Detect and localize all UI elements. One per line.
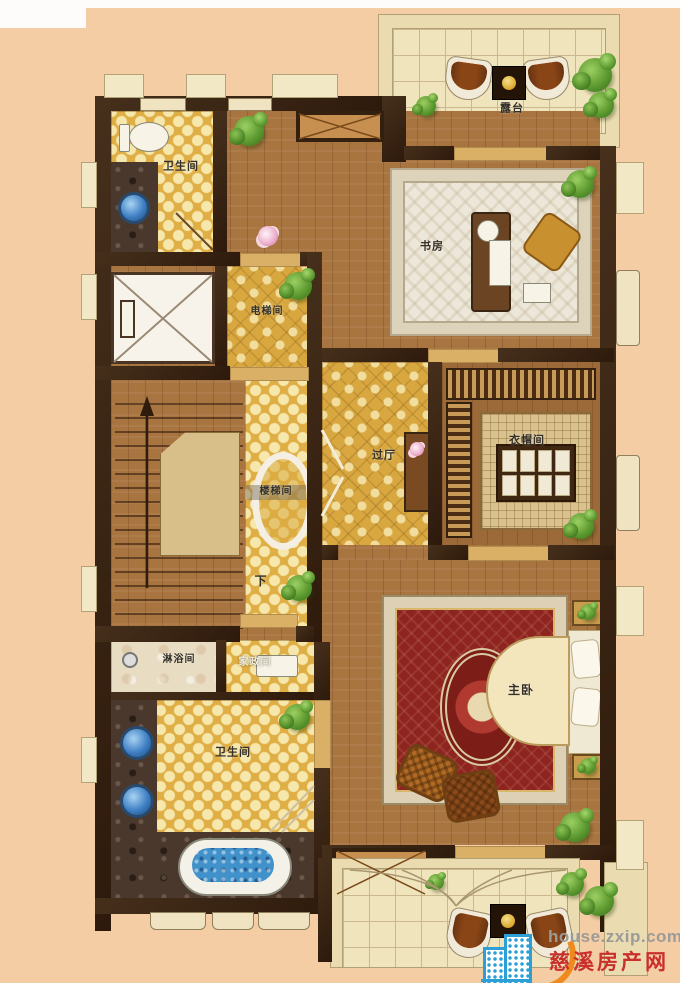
- wall: [428, 545, 468, 560]
- window: [228, 98, 272, 111]
- wall: [322, 545, 338, 560]
- wall: [600, 146, 616, 932]
- wardrobe-icon: [496, 444, 576, 502]
- wall: [382, 96, 406, 162]
- plant-icon: [286, 575, 312, 601]
- label-housekeeping: 家政间: [239, 658, 272, 668]
- label-cloakroom: 衣帽间: [509, 436, 545, 447]
- window: [616, 270, 640, 346]
- window: [212, 912, 254, 930]
- cabinet-icon: [296, 111, 384, 142]
- toilet-icon: [129, 122, 169, 152]
- label-hallway: 过厅: [372, 451, 396, 462]
- shower-head-icon: [122, 652, 138, 668]
- plant-icon: [584, 886, 614, 916]
- window: [616, 455, 640, 531]
- pilaster: [272, 74, 338, 98]
- closet-shelf-icon: [446, 368, 596, 400]
- door-sill: [468, 546, 550, 561]
- side-table-icon: [523, 283, 551, 303]
- plant-icon: [284, 704, 310, 730]
- pilaster: [81, 162, 97, 208]
- door-sill: [314, 700, 331, 770]
- label-terrace-top: 露台: [500, 104, 524, 115]
- stair-void: [252, 452, 314, 550]
- building-icon: [481, 931, 533, 983]
- plant-icon: [588, 92, 614, 118]
- desk-chair-icon: [477, 220, 499, 242]
- window: [258, 912, 310, 930]
- pilaster: [81, 737, 97, 783]
- pilaster: [616, 162, 644, 214]
- sink-icon: [118, 192, 150, 224]
- wall: [213, 111, 227, 252]
- label-stair-down: 下: [254, 575, 267, 587]
- plant-icon: [580, 758, 596, 774]
- flower-icon: [258, 226, 278, 246]
- wall: [546, 146, 600, 160]
- pilaster: [186, 74, 226, 98]
- open-passage: [338, 545, 428, 560]
- wall: [498, 348, 614, 362]
- door-sill: [240, 253, 302, 267]
- pilaster: [81, 566, 97, 612]
- floor-plan-image: 露台 卫生间 书房 电梯间 楼梯间 下 过厅 衣帽间 淋浴间 家政间 卫生间 主…: [0, 0, 680, 983]
- door-sill: [454, 147, 548, 161]
- pillow-icon: [570, 687, 602, 728]
- background-corner: [0, 8, 86, 28]
- plant-icon: [428, 874, 444, 890]
- plant-icon: [284, 272, 312, 300]
- desk-chair-icon: [489, 240, 511, 286]
- window: [140, 98, 186, 111]
- label-bathroom-master: 卫生间: [215, 748, 251, 759]
- watermark-site: house.zxip.com: [548, 927, 680, 947]
- plant-icon: [578, 58, 612, 92]
- elevator-door-icon: [120, 300, 135, 338]
- label-stairwell: 楼梯间: [260, 487, 293, 497]
- door-sill: [230, 367, 309, 381]
- bathroom-master-counter: [111, 700, 157, 843]
- wall: [215, 266, 227, 366]
- wall: [322, 348, 428, 362]
- plant-icon: [568, 513, 594, 539]
- pilaster: [104, 74, 144, 98]
- wall: [296, 626, 314, 642]
- plant-icon: [560, 812, 590, 842]
- pilaster: [616, 820, 644, 870]
- wall: [548, 545, 614, 560]
- plant-icon: [234, 116, 264, 146]
- label-elevator-hall: 电梯间: [251, 307, 284, 317]
- wall: [404, 146, 454, 160]
- label-shower-room: 淋浴间: [163, 655, 196, 665]
- plant-icon: [416, 96, 436, 116]
- plant-icon: [560, 872, 584, 896]
- wall: [314, 642, 330, 700]
- door-sill: [240, 614, 298, 628]
- plant-icon: [580, 604, 596, 620]
- wall: [95, 366, 230, 380]
- window: [150, 912, 206, 930]
- flower-icon: [410, 442, 424, 456]
- bathtub-water: [192, 848, 274, 882]
- stair-landing: [160, 432, 240, 556]
- wall: [216, 640, 226, 692]
- door-sill: [428, 349, 500, 363]
- closet-shelf-icon: [446, 402, 472, 538]
- pilaster: [81, 274, 97, 320]
- plant-icon: [566, 170, 594, 198]
- watermark-name: 慈溪房产网: [549, 946, 669, 976]
- wall: [318, 858, 332, 962]
- wall: [95, 252, 240, 266]
- label-master-bedroom: 主卧: [508, 684, 534, 696]
- wall: [111, 692, 314, 700]
- sink-icon: [120, 784, 154, 818]
- label-study: 书房: [420, 242, 444, 253]
- pillow-icon: [570, 639, 602, 680]
- wall: [428, 362, 442, 545]
- terrace-table: [492, 66, 526, 100]
- ottoman-icon: [440, 768, 502, 825]
- wall: [95, 96, 111, 931]
- sink-icon: [120, 726, 154, 760]
- pilaster: [616, 586, 644, 636]
- label-bathroom-top: 卫生间: [163, 162, 199, 173]
